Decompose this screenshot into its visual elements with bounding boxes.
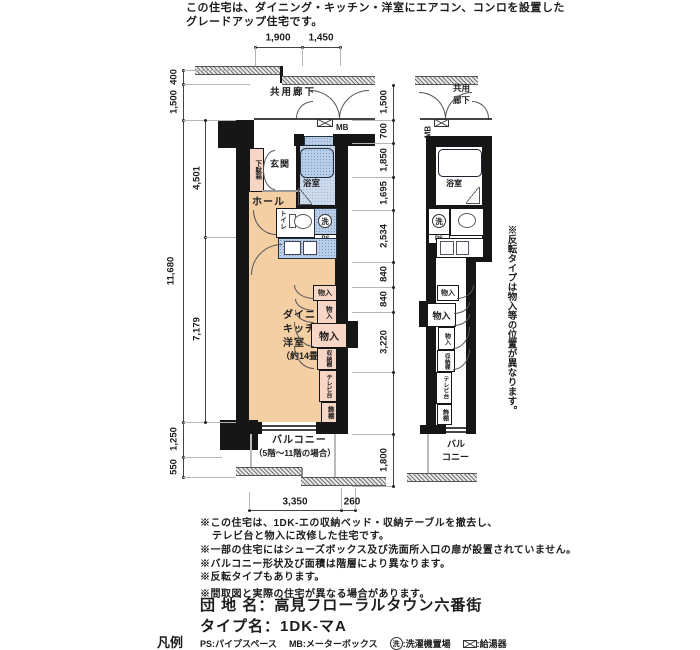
wall [236,134,249,434]
dim-top-1450: 1,450 [308,33,333,44]
door-arc [419,92,446,119]
bath-door [298,188,312,205]
balcony-label-2: コニー [442,453,469,462]
room-label-toilet: トイレ [278,210,285,230]
legend-item-washer-desc: :洗濯機置場 [403,637,451,650]
dim-mid-1850: 1,850 [379,148,390,172]
extension-line [183,84,250,85]
extension-line [352,262,392,263]
balcony-edge [427,434,429,473]
balcony-window-line [262,425,316,427]
note-5: ※反転タイプもあります。 [200,568,325,583]
closet-monoire: 物入 [317,300,337,324]
dimension-tick [392,84,395,87]
dim-mid-1800: 1,800 [379,448,390,472]
dim-mid-3220: 3,220 [379,330,390,354]
tv-stand: テレビ台 [319,370,337,402]
dimension-line [183,70,184,477]
dimension-line [205,120,206,422]
dimension-line [255,47,340,48]
dim-left-1250: 1,250 [169,427,180,451]
wall [316,422,348,434]
note-3: ※一部の住宅にはシューズボックス及び洗面所入口の扉が設置されていません。 [200,541,577,556]
room-label-genkan: 玄関 [270,160,290,169]
dim-left-400: 400 [169,69,180,85]
water-heater-icon [463,640,477,648]
balcony-label-1: バル [447,440,465,449]
bath-window [304,136,335,146]
dim-mid-2534: 2,534 [379,224,390,248]
display-shelf-label: 飾棚 [326,406,333,419]
estate-name-value: 高見フローラルタウン六番街 [274,597,482,614]
legend-item-heater: :給湯器 [463,637,507,650]
extension-line [352,372,392,373]
bathtub [300,148,334,178]
toilet-bowl [458,213,476,228]
door-arc [310,90,340,119]
legend-item-heater-desc: :給湯器 [477,637,507,650]
closet-monoire-large: 物入 [311,323,347,348]
dim-mid-840a: 840 [379,266,390,282]
type-name-value: 1DK-マA [280,618,347,635]
shoe-cabinet: 下駄箱 [249,148,264,192]
dim-mid-1500: 1,500 [379,90,390,114]
balcony-railing [236,467,302,476]
display-shelf-label: 飾棚 [442,409,448,421]
wall [333,134,375,146]
legend-item-ps: PS:パイプスペース [200,637,277,650]
extension-line [183,477,236,478]
type-name-row: タイプ名：1DK-マA [200,619,347,634]
mb-label: MB [336,124,348,132]
wall [420,425,446,434]
extension-line [183,422,236,423]
toilet-bowl [294,214,312,229]
legend-item-washer: 洗 :洗濯機置場 [390,637,451,650]
reversed-type-note: ※反転タイプは物入等の位置が異なります。 [506,225,516,435]
door-arc [339,90,369,119]
balcony-railing [407,473,477,482]
room-label-bath: 浴室 [303,179,320,188]
mini-corridor-label-1: 共用 [453,84,470,93]
dimension-tick [204,119,207,122]
extension-line [352,210,392,211]
dim-left-550: 550 [169,459,180,475]
kitchen-stove [456,241,469,255]
kitchen-sink [440,241,454,255]
tv-stand-label: テレビ台 [441,376,447,399]
floor-plan-page: この住宅は、ダイニング・キッチン・洋室にエアコン、コンロを設置した グレードアッ… [0,0,700,650]
extension-line [352,434,392,435]
dim-top-1900: 1,900 [265,33,290,44]
tv-stand: テレビ台 [436,372,452,404]
header-line-2: グレードアップ住宅です。 [186,17,323,28]
room-label-line1: ダイニング・ [283,311,349,321]
balcony-railing [301,477,386,486]
dim-left-7179: 7,179 [192,317,203,341]
extension-line [255,47,256,66]
genkan-step-line [262,190,300,192]
extension-line [352,287,392,288]
extension-line [183,120,236,121]
extension-line [341,488,342,510]
water-heater-icon [434,119,449,127]
display-shelf: 飾棚 [321,402,337,423]
washer-icon: 洗 [318,214,332,228]
wall [236,134,254,146]
dim-mid-840b: 840 [379,291,390,307]
closet-label: 収納棚 [443,353,449,370]
tv-stand-label: テレビ台 [325,374,331,398]
closet-shelf: 収納棚 [317,348,337,370]
dim-mid-1695: 1,695 [379,181,390,205]
water-heater-icon [317,119,333,127]
balcony-edge [334,434,336,477]
balcony-edge [250,434,252,467]
dim-left-1500: 1,500 [169,90,180,114]
dim-bottom-3350: 3,350 [282,497,307,508]
kitchen-sink [284,241,301,255]
extension-line [352,143,392,144]
extension-line [352,120,392,121]
header-line-1: この住宅は、ダイニング・キッチン・洋室にエアコン、コンロを設置した [186,3,565,14]
extension-line [249,492,250,510]
door-arc [472,101,489,118]
extension-line [205,237,236,238]
note-2: テレビ台と物入に改修した住宅です。 [212,527,390,542]
wall [426,136,436,434]
wall [220,420,258,450]
legend-title: 凡例 [157,636,183,649]
closet-monoire-large: 物入 [427,303,456,327]
washer-icon: 洗 [390,637,403,650]
door-arc [445,92,472,119]
extension-line [352,486,392,487]
extension-line [183,457,222,458]
dim-bottom-260: 260 [344,497,361,508]
balcony-window-line [262,429,316,431]
wall [294,134,304,146]
extension-line [352,312,392,313]
extension-line [340,47,341,66]
extension-line [302,47,303,66]
balcony-window-line [446,431,466,433]
balcony-floors-label: （5階～11階の場合） [254,449,336,458]
legend-item-mb: MB:メーターボックス [289,637,378,650]
room-label-hall: ホール [252,198,285,208]
room-label-bath: 浴室 [446,180,462,188]
shoe-cabinet-label: 下駄箱 [253,160,260,180]
extension-line [352,177,392,178]
balcony-window-line [446,427,466,429]
display-shelf: 飾棚 [437,404,452,425]
closet-label: 物入 [324,306,331,319]
wall [466,425,476,434]
kitchen-stove [303,241,317,255]
dimension-tick [204,421,207,424]
estate-name-label: 団 地 名： [200,597,274,614]
closet-label: 収納棚 [324,350,330,367]
legend-items: PS:パイプスペース MB:メーターボックス 洗 :洗濯機置場 :給湯器 [200,637,507,650]
closet-monoire: 物入 [313,285,337,301]
balcony-label: バルコニー [272,436,327,446]
closet-monoire: 物入 [437,285,459,301]
dim-left-11680: 11,680 [166,257,177,286]
dim-left-4501: 4,501 [192,166,203,190]
closet-label: 物入 [444,333,450,345]
bathtub [438,149,482,177]
building-edge [282,76,375,85]
type-name-label: タイプ名： [200,618,280,635]
dim-mid-700: 700 [379,123,390,139]
bath-door [466,187,480,204]
washer-icon: 洗 [432,214,446,228]
extension-line [183,70,235,71]
estate-name-row: 団 地 名：高見フローラルタウン六番街 [200,598,482,613]
